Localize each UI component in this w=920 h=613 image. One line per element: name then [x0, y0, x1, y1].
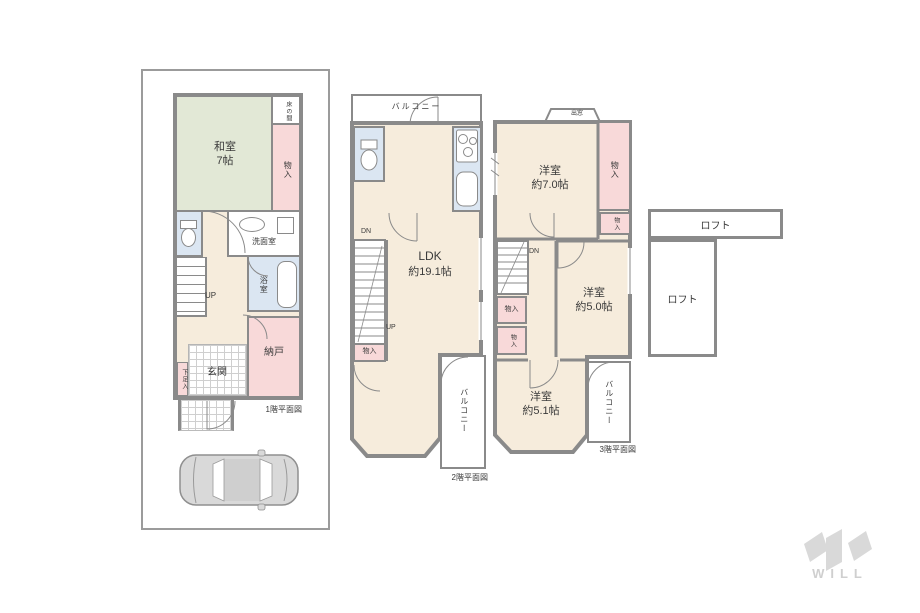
floorplan-canvas: 和室 7帖 床の間 物入 洗面室 浴室 UP 納戸 玄関 下足入 1階平面図	[0, 0, 920, 613]
up-label-1f: UP	[205, 291, 216, 301]
senmen-label: 洗面室	[228, 235, 300, 249]
loft-upper: ロフト	[648, 209, 783, 239]
shoe-box-text: 下足入	[179, 369, 187, 390]
bath-label: 浴室	[250, 262, 276, 308]
balcony-side-text-2f: バルコニー	[458, 388, 468, 433]
up-label-2f: UP	[386, 323, 396, 332]
loft-lower: ロフト	[648, 239, 717, 357]
floor1-caption: 1階平面図	[240, 404, 302, 415]
closet-1f-text: 物入	[282, 161, 292, 179]
tokonoma-label: 床の間	[273, 97, 301, 125]
closet-3f-right-small-text: 物入	[611, 217, 619, 231]
ldk-label: LDK 約19.1帖	[380, 246, 480, 282]
car-top-view	[172, 447, 306, 513]
closet-1f-label: 物入	[273, 130, 301, 210]
floor2-caption: 2階平面図	[428, 472, 488, 483]
room51-size: 約5.1帖	[522, 404, 559, 418]
balcony-label-3f: バルコニー	[600, 372, 617, 432]
balcony-top-label: バルコニー	[352, 100, 481, 114]
room5-name: 洋室	[575, 286, 612, 300]
loft-lower-label: ロフト	[668, 291, 698, 306]
bay-window-label: 出窓	[557, 110, 597, 120]
shoe-box-label: 下足入	[177, 362, 189, 396]
room7-size: 約7.0帖	[531, 178, 568, 192]
room51-label: 洋室 約5.1帖	[496, 386, 586, 422]
closet-3f-right-small-label: 物入	[602, 214, 628, 233]
bath-text: 浴室	[258, 276, 268, 294]
washitsu-label: 和室 7帖	[177, 132, 273, 176]
closet-2f-label: 物入	[354, 345, 385, 358]
dn-label-2f: DN	[361, 227, 371, 236]
genkan-label: 玄関	[188, 365, 246, 379]
closet-3f-left2-text: 物入	[508, 334, 516, 348]
ldk-size: 約19.1帖	[408, 265, 451, 279]
room7-name: 洋室	[531, 164, 568, 178]
ldk-name: LDK	[408, 249, 451, 265]
closet-3f-right-tall-label: 物入	[600, 145, 628, 195]
closet-3f-right-tall-text: 物入	[609, 161, 619, 179]
washitsu-name: 和室	[214, 140, 236, 154]
closet-3f-left2-label: 物入	[498, 328, 525, 353]
closet-3f-left1-label: 物入	[497, 303, 526, 317]
balcony-side-label-2f: バルコニー	[455, 378, 472, 443]
room51-name: 洋室	[522, 390, 559, 404]
nando-label: 納戸	[247, 345, 301, 359]
room5-label: 洋室 約5.0帖	[558, 282, 630, 318]
dn-label-3f: DN	[529, 247, 539, 256]
balcony-text-3f: バルコニー	[603, 380, 613, 425]
washitsu-size: 7帖	[214, 154, 236, 168]
room7-label: 洋室 約7.0帖	[500, 160, 600, 196]
car-icon	[180, 450, 298, 510]
loft-upper-label: ロフト	[701, 217, 731, 232]
room5-size: 約5.0帖	[575, 300, 612, 314]
floor3-caption: 3階平面図	[578, 444, 636, 455]
tokonoma-text: 床の間	[283, 101, 291, 122]
will-logo-text: WILL	[798, 566, 882, 582]
